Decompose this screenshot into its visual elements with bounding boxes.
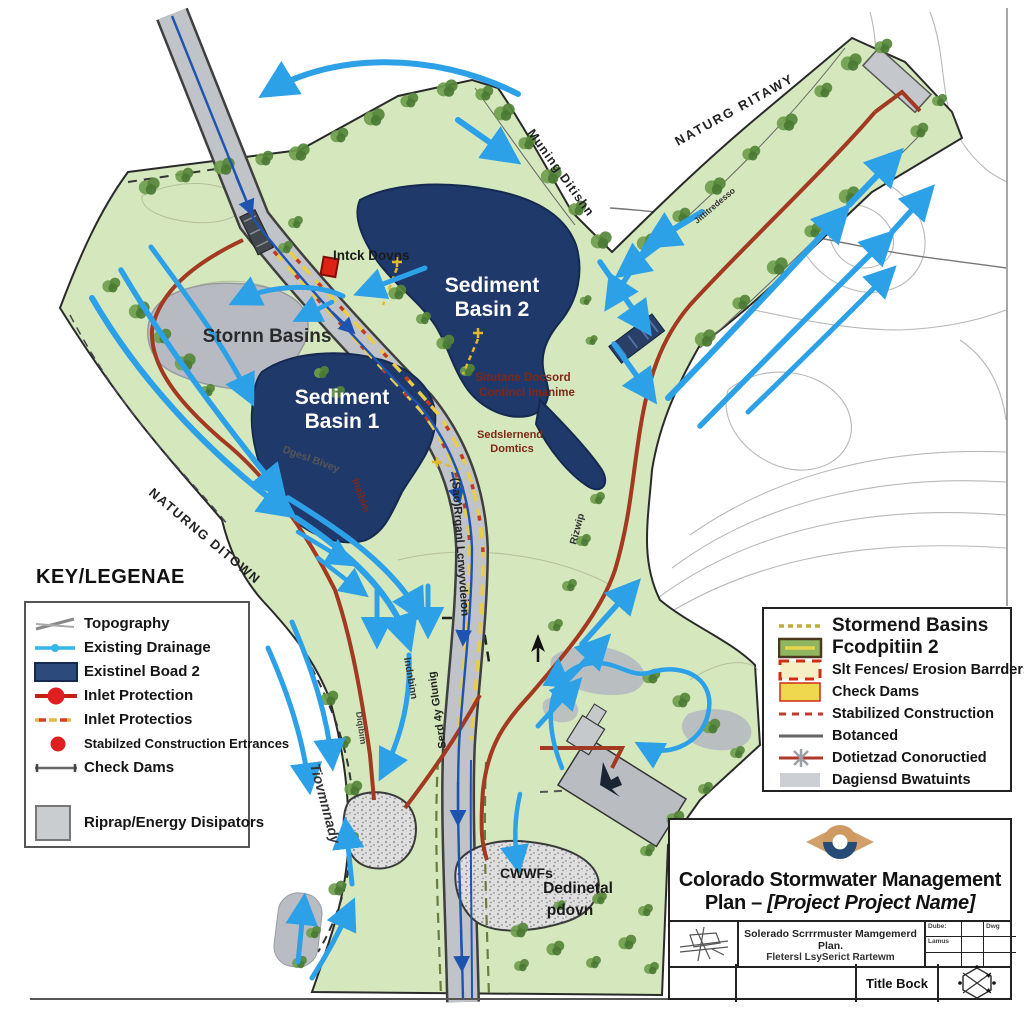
cell-status: Lamus (926, 937, 961, 953)
legend-item-stabilized-entrances: Stabilzed Construction Ertrances (34, 732, 242, 755)
legend-left: Topography Existing Drainage Existinel B… (24, 601, 250, 848)
legend-left-title: KEY/LEGENAE (36, 566, 185, 589)
red-dot-icon (34, 735, 84, 753)
title-block-header: Colorado Stormwater Management Plan – [P… (670, 820, 1010, 920)
plan-title-line2: Plan – [Project Project Name] (670, 892, 1010, 915)
legend-item-check-dams: Check Dams (778, 681, 1006, 702)
label-basin2-1: Sediment (445, 274, 540, 297)
cell-blank-1 (961, 922, 983, 937)
legend-item-botanced: Botanced (778, 725, 1006, 746)
cell-date: Dube: (926, 922, 961, 937)
silt-fence-icon (778, 658, 832, 682)
project-name-placeholder: [Project Project Name] (767, 892, 975, 914)
cell-dwg: Dwg (983, 922, 1016, 937)
legend-item-dagiensd: Dagiensd Bwatuints (778, 769, 1006, 790)
riprap-blob-1 (344, 792, 416, 868)
existing-drainage-icon (34, 641, 84, 655)
title-bock-cell: Title Bock (857, 964, 939, 1002)
subtitle-line1: Solerado Scrrrmuster Mamgemerd Plan. (737, 928, 924, 952)
bottom-cell-2 (737, 964, 857, 1002)
label-basin2-2: Basin 2 (455, 298, 530, 321)
label-note1-2: Contincl Imanime (479, 387, 575, 399)
dashed-barrier-icon (34, 714, 84, 726)
legend-item-inlet-protection: Inlet Protection (34, 684, 242, 707)
revision-mini-table: Dube: Dwg Lamus (924, 922, 1016, 966)
asterisk-line-icon (778, 748, 832, 768)
red-dash-icon (778, 709, 832, 719)
label-intake: Intck Dovns (333, 248, 410, 263)
legend-right: Stormend Basins Fcodpitiin 2 Slt Fences/… (762, 607, 1012, 792)
legend-item-stormend-basins: Stormend Basins (778, 615, 1006, 636)
legend-item-stabilized-construction: Stabilized Construction (778, 703, 1006, 724)
light-gray-swatch-icon (778, 771, 832, 789)
check-dam-icon (34, 762, 84, 774)
compass-icon (955, 965, 999, 1001)
gray-line-icon (778, 732, 832, 740)
label-storm-basins: Stornn Basins (203, 326, 332, 347)
cell-blank-2 (961, 937, 983, 953)
label-note1-1: Situtane Docsord (475, 372, 570, 384)
compass-cell (939, 964, 1014, 1002)
vicinity-sketch-icon (676, 925, 732, 963)
green-swatch-icon (778, 637, 832, 659)
label-basin1-2: Basin 1 (305, 410, 380, 433)
label-tiov: Tiovmnnady (307, 762, 344, 847)
label-cwwfs: CWWFs (500, 865, 553, 881)
vicinity-sketch-cell (670, 922, 739, 966)
plan-title-line1: Colorado Stormwater Management (670, 869, 1010, 892)
legend-item-existing-road: Existinel Boad 2 (34, 660, 242, 683)
stormwater-plan-sheet: { "map": { "labels": { "intake": "Intck … (0, 0, 1024, 1024)
subtitle-line2: Fletersl LsySerict Rartewm (737, 952, 924, 963)
legend-item-topography: Topography (34, 612, 242, 635)
label-dedinetal-1: Dedinetal (543, 880, 613, 897)
logo-icon (800, 822, 880, 862)
yellow-swatch-icon (778, 681, 832, 703)
topography-icon (34, 615, 84, 633)
title-block-bottom-row: Title Bock (670, 964, 1010, 1002)
legend-item-dotietzad: Dotietzad Conoructied (778, 747, 1006, 768)
cell-blank-3 (983, 937, 1016, 953)
subtitle-cell: Solerado Scrrrmuster Mamgemerd Plan. Fle… (737, 922, 924, 966)
legend-item-fcodpitiin: Fcodpitiin 2 (778, 637, 1006, 658)
olive-dash-icon (778, 621, 832, 631)
riprap-icon (34, 804, 84, 842)
title-block-middle-row: Solerado Scrrrmuster Mamgemerd Plan. Fle… (670, 920, 1010, 968)
legend-item-inlet-protectios: Inlet Protectios (34, 708, 242, 731)
label-basin1-1: Sediment (295, 386, 390, 409)
inlet-protection-icon (34, 686, 84, 706)
label-note2-1: Sedslernend (477, 429, 543, 441)
legend-item-check-dams: Check Dams (34, 756, 242, 779)
legend-item-riprap: Riprap/Energy Disipators (34, 811, 242, 834)
basin-swatch-icon (34, 662, 84, 682)
title-block: Colorado Stormwater Management Plan – [P… (668, 818, 1012, 1000)
label-dedinetal-2: pdovn (547, 902, 594, 919)
legend-item-silt-fences: Slt Fences/ Erosion Barrders (778, 659, 1006, 680)
label-note2-2: Domtics (490, 443, 533, 455)
bottom-cell-1 (670, 964, 737, 1002)
legend-item-existing-drainage: Existing Drainage (34, 636, 242, 659)
